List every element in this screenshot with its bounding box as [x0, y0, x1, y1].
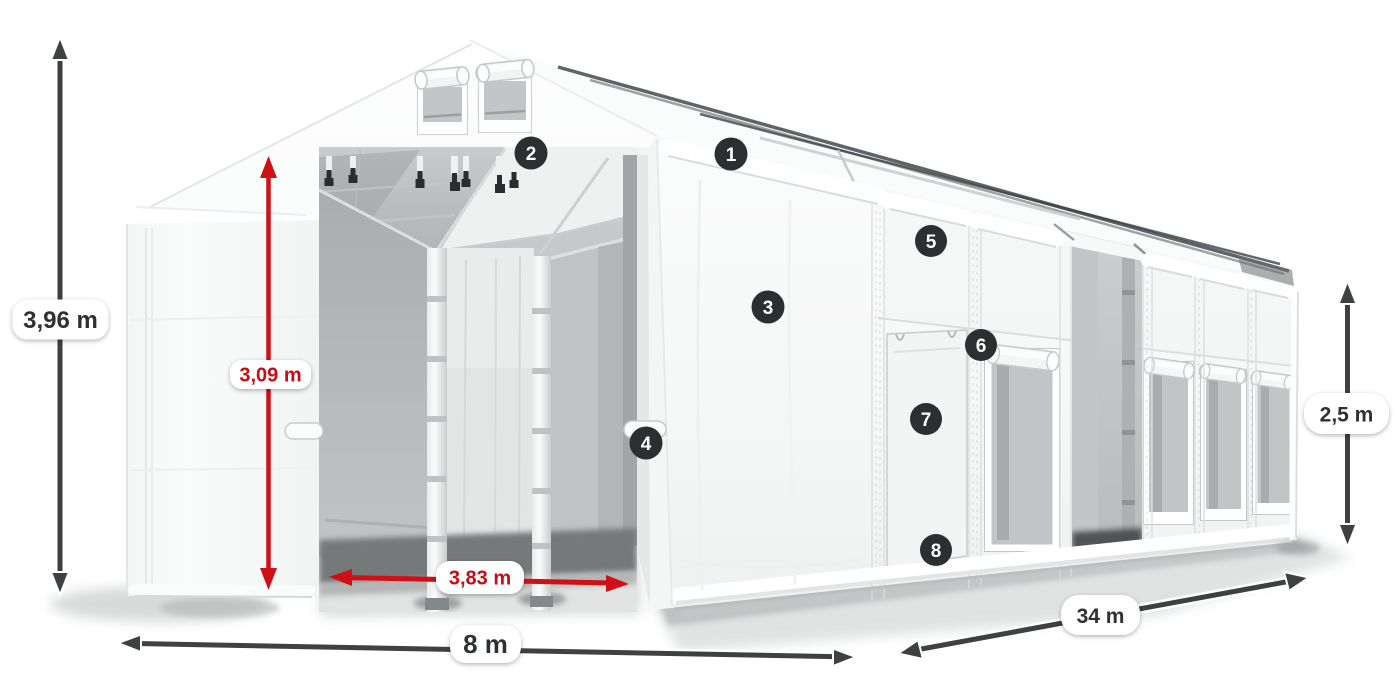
svg-text:5: 5	[926, 232, 937, 253]
svg-text:34 m: 34 m	[1077, 605, 1125, 628]
svg-text:3,09 m: 3,09 m	[239, 365, 301, 387]
svg-text:7: 7	[921, 410, 932, 431]
svg-text:8 m: 8 m	[463, 629, 508, 659]
svg-text:2,5 m: 2,5 m	[1320, 404, 1374, 427]
svg-text:3: 3	[763, 298, 774, 319]
svg-text:8: 8	[931, 541, 942, 562]
svg-text:2: 2	[526, 144, 537, 165]
svg-text:1: 1	[726, 145, 737, 166]
svg-text:4: 4	[641, 434, 652, 455]
svg-text:3,96 m: 3,96 m	[23, 307, 98, 334]
svg-text:6: 6	[976, 336, 987, 357]
svg-text:3,83 m: 3,83 m	[449, 568, 511, 590]
